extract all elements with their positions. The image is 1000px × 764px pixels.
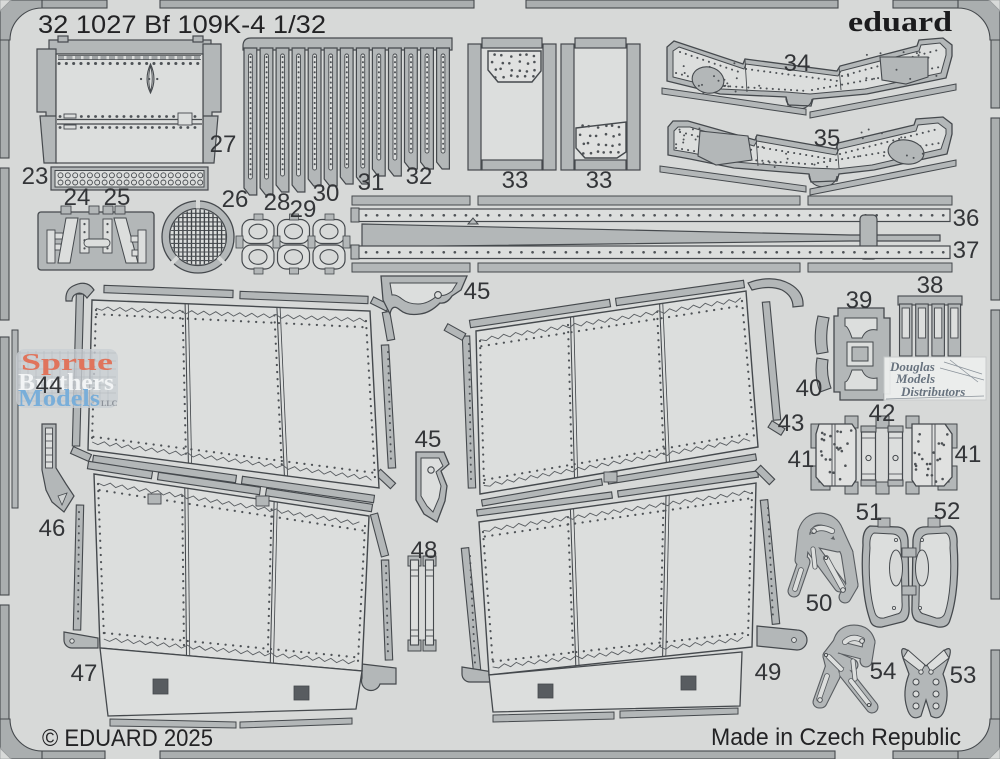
svg-text:51: 51 [856,499,883,526]
svg-text:eduard: eduard [848,7,953,38]
svg-text:42: 42 [869,400,896,427]
svg-text:32: 32 [406,163,433,190]
svg-text:37: 37 [953,237,980,264]
svg-text:35: 35 [814,125,841,152]
svg-text:Made in Czech Republic: Made in Czech Republic [711,724,961,751]
svg-text:33: 33 [502,167,529,194]
svg-text:28: 28 [264,189,291,216]
svg-text:LLC: LLC [101,399,118,408]
svg-text:44: 44 [36,372,63,399]
svg-text:48: 48 [411,537,438,564]
svg-text:47: 47 [71,660,98,687]
svg-text:32 1027 Bf 109K-4 1/32: 32 1027 Bf 109K-4 1/32 [38,11,326,39]
svg-text:© EDUARD 2025: © EDUARD 2025 [42,725,213,752]
svg-text:24: 24 [64,184,91,211]
svg-text:36: 36 [953,205,980,232]
svg-text:25: 25 [104,184,131,211]
svg-text:54: 54 [870,658,897,685]
svg-text:49: 49 [755,659,782,686]
svg-text:34: 34 [784,50,811,77]
svg-text:23: 23 [22,163,49,190]
svg-text:41: 41 [955,441,982,468]
svg-text:33: 33 [586,167,613,194]
svg-text:50: 50 [806,590,833,617]
svg-text:41: 41 [788,446,815,473]
svg-text:45: 45 [464,278,491,305]
svg-text:27: 27 [210,131,237,158]
svg-text:38: 38 [917,272,944,299]
svg-text:30: 30 [313,180,340,207]
svg-text:43: 43 [778,410,805,437]
svg-text:52: 52 [934,498,961,525]
svg-text:31: 31 [358,169,385,196]
svg-text:53: 53 [950,662,977,689]
svg-text:40: 40 [796,375,823,402]
svg-text:26: 26 [222,186,249,213]
svg-text:39: 39 [846,287,873,314]
svg-text:45: 45 [415,426,442,453]
svg-text:46: 46 [39,515,66,542]
